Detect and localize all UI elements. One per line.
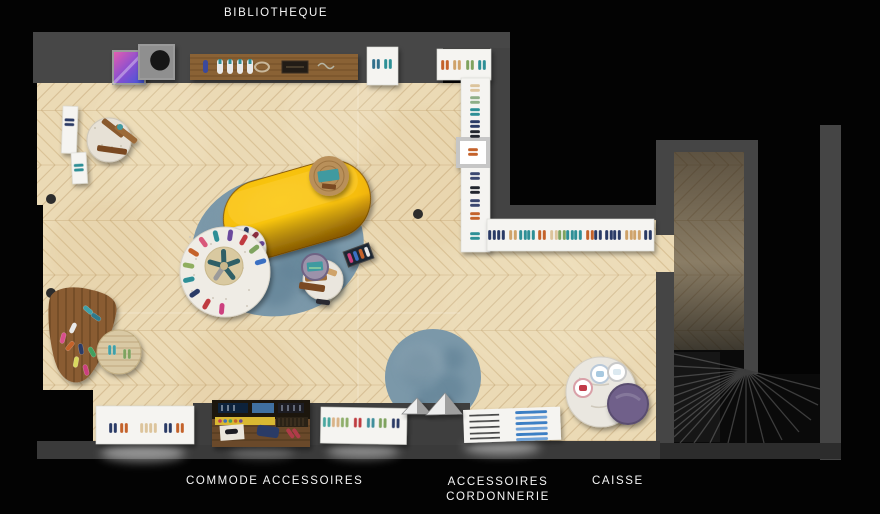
wall-shelf-notch-row bbox=[487, 219, 654, 251]
floor-shelf-bottom-left bbox=[96, 406, 194, 444]
stair-corridor-shade bbox=[674, 152, 744, 352]
bottle-icon bbox=[203, 60, 208, 73]
shoe-pair bbox=[509, 230, 512, 240]
shoe-pair bbox=[519, 230, 522, 240]
shoe-pair bbox=[453, 60, 456, 70]
shoe-pair bbox=[367, 418, 370, 428]
wall-corridor-top bbox=[656, 140, 758, 152]
shoe-pair bbox=[586, 230, 589, 240]
shoe-pair bbox=[478, 60, 481, 70]
wall-shelf-top-b bbox=[437, 49, 491, 80]
label-accessoires-cordonnerie: ACCESSOIRES CORDONNERIE bbox=[442, 475, 554, 505]
pinwheel-display bbox=[205, 247, 243, 285]
shoe-pair bbox=[470, 120, 480, 123]
display-box bbox=[252, 403, 274, 413]
shoe-pair bbox=[470, 199, 480, 202]
shoe-pair bbox=[470, 96, 480, 99]
shoe-pair bbox=[470, 130, 480, 133]
shoe-pair bbox=[332, 417, 335, 427]
floor-shelf-flipflops bbox=[320, 407, 407, 444]
shoe-pair bbox=[538, 230, 541, 240]
shoe-pair bbox=[470, 108, 480, 111]
wall-shelf-top-a bbox=[367, 47, 398, 85]
shoe-pair bbox=[468, 148, 478, 151]
shoe-pair bbox=[392, 418, 395, 428]
wall-notch-left bbox=[490, 48, 510, 220]
shoe-pair bbox=[379, 418, 382, 428]
shoe-pair bbox=[372, 59, 375, 69]
shoe-pair bbox=[354, 418, 357, 428]
shoe-pair bbox=[176, 423, 179, 433]
floor-plan-stage: BIBLIOTHEQUE COMMODE ACCESSOIRES ACCESSO… bbox=[0, 0, 880, 514]
shoe-pair bbox=[488, 230, 491, 240]
spotlight-glow bbox=[101, 444, 185, 462]
shoe-pair bbox=[470, 172, 480, 175]
shoe-pair bbox=[633, 230, 636, 240]
purple-pouf bbox=[608, 384, 648, 424]
shoe-card bbox=[220, 424, 245, 441]
commode-accessoires bbox=[212, 400, 310, 447]
shoe-pair bbox=[566, 230, 569, 240]
shoe-pair bbox=[470, 212, 480, 215]
shoe-pair bbox=[497, 230, 500, 240]
shoe-pair bbox=[149, 423, 152, 433]
wall-corridor-left-a bbox=[656, 152, 674, 235]
wicker-table-low bbox=[97, 330, 141, 374]
spotlight-glow bbox=[327, 443, 399, 459]
shoe-pair bbox=[64, 118, 74, 122]
shoe-pair bbox=[441, 60, 444, 70]
shoe-pair bbox=[644, 230, 647, 240]
shoe-pair bbox=[574, 230, 577, 240]
wall-bottom-stairs bbox=[656, 443, 841, 459]
wall-corridor-left-b bbox=[656, 272, 674, 443]
wall-notch-bottom bbox=[490, 205, 675, 220]
stair-doorway-floor bbox=[656, 235, 674, 272]
structural-column bbox=[413, 209, 423, 219]
shoe-pair bbox=[323, 417, 326, 427]
shoe-pair bbox=[605, 230, 608, 240]
framed-photo bbox=[139, 45, 174, 79]
shoe-pair bbox=[164, 423, 167, 433]
structural-column bbox=[46, 194, 56, 204]
wicker-side-table bbox=[309, 156, 349, 196]
shoe-pair bbox=[120, 423, 123, 433]
shoe-pair bbox=[625, 230, 628, 240]
wall-top-thin bbox=[443, 32, 510, 48]
round-tray bbox=[302, 254, 328, 280]
label-commode-accessoires: COMMODE ACCESSOIRES bbox=[186, 475, 363, 487]
wall-corridor-right bbox=[744, 140, 758, 380]
label-bibliotheque: BIBLIOTHEQUE bbox=[224, 7, 328, 19]
shoe-pair bbox=[470, 186, 480, 189]
display-stand-left-1 bbox=[61, 106, 78, 153]
display-shoe bbox=[219, 303, 225, 315]
shoe-pair bbox=[594, 230, 597, 240]
shoe-pair bbox=[613, 230, 616, 240]
label-cordonnerie: CORDONNERIE bbox=[446, 491, 550, 503]
display-stand-left-2 bbox=[71, 152, 88, 184]
wall-shelf-right bbox=[456, 78, 490, 252]
spotlight-glow bbox=[230, 445, 294, 459]
shoe-pair bbox=[470, 232, 480, 235]
shoe-pair bbox=[470, 84, 480, 87]
bibliotheque-shelf bbox=[190, 54, 358, 80]
shoe-pair bbox=[550, 230, 553, 240]
wall-right-exterior bbox=[820, 125, 841, 460]
shoe-pair bbox=[341, 417, 344, 427]
floor-plan-scene bbox=[0, 0, 880, 514]
label-caisse: CAISSE bbox=[592, 475, 644, 487]
shoe-pair bbox=[123, 349, 126, 359]
shoe-pair bbox=[384, 59, 387, 69]
shoe-pair bbox=[108, 345, 111, 355]
shelf-cordonnerie bbox=[463, 407, 561, 443]
shoe-pair bbox=[558, 230, 561, 240]
shoe-pair bbox=[109, 423, 112, 433]
shoe-pair bbox=[527, 230, 530, 240]
shoe-pair bbox=[74, 163, 84, 167]
label-accessoires: ACCESSOIRES bbox=[448, 476, 549, 488]
shoe-pair bbox=[466, 60, 469, 70]
shoe-pair bbox=[140, 423, 143, 433]
